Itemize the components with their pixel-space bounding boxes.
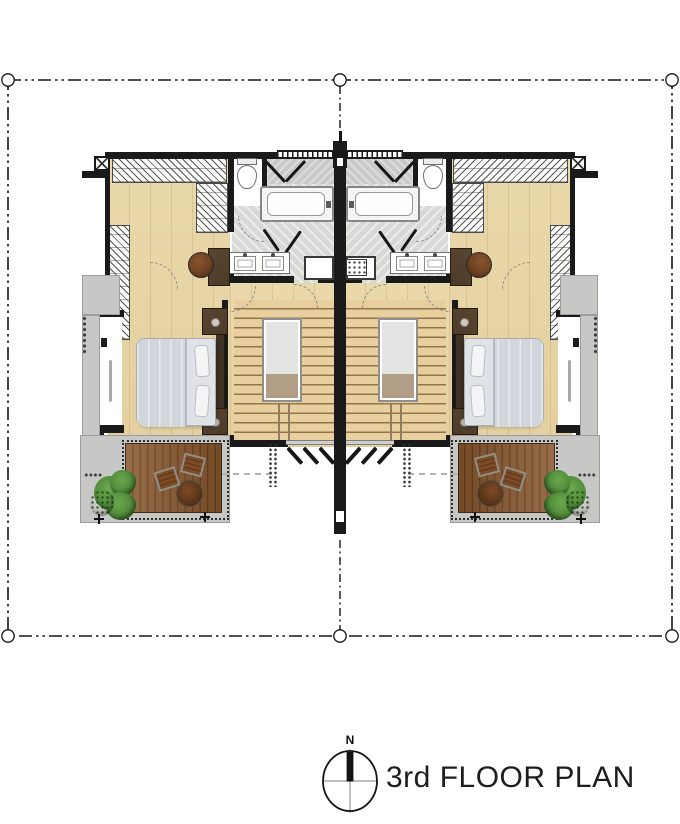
sink-icon: [262, 256, 284, 271]
wardrobe-cabinet: [452, 183, 484, 233]
side-ledge: [560, 275, 598, 315]
page-title: 3rd FLOOR PLAN: [386, 761, 656, 795]
survey-cross: [470, 512, 480, 522]
dotted-strip: [578, 472, 596, 479]
window-glazing: [109, 360, 112, 402]
bathtub-basin: [355, 192, 413, 216]
window-mark: [101, 338, 107, 347]
floor-plan-canvas: N 3rd FLOOR PLAN: [0, 0, 680, 824]
folding-door-leaf: [303, 447, 320, 465]
shaft-box: [570, 156, 586, 171]
stair-landing: [382, 374, 414, 398]
folding-door-leaf: [377, 447, 394, 465]
dressing-stool: [466, 252, 492, 278]
pillow: [470, 385, 486, 418]
side-ledge: [82, 275, 120, 315]
faucet-dot: [271, 253, 275, 257]
folding-door-track: [286, 440, 334, 445]
wall-stub: [570, 171, 598, 178]
bathtub-faucet: [326, 201, 331, 208]
headboard: [216, 335, 224, 408]
bathtub-faucet: [349, 201, 354, 208]
utility-shaft-box: [346, 259, 367, 276]
faucet-dot: [433, 253, 437, 257]
shaft-box: [94, 156, 110, 171]
louver-band: [347, 150, 403, 159]
faucet-dot: [405, 253, 409, 257]
wardrobe-cabinet: [196, 183, 228, 233]
wall-segment: [228, 440, 288, 447]
blanket: [493, 339, 543, 427]
louver-dots: [268, 443, 278, 487]
stair-landing: [266, 374, 298, 398]
bathroom-wall: [228, 276, 294, 283]
setback-dash: [408, 473, 458, 475]
utility-box: [304, 256, 334, 280]
setback-dash: [222, 473, 272, 475]
stair-string: [288, 404, 290, 444]
bathroom-wall: [228, 152, 234, 232]
north-compass-icon: [319, 744, 381, 818]
wall-slot: [337, 158, 343, 166]
louver-band: [277, 150, 333, 159]
stair-string: [390, 404, 392, 444]
center-stem: [339, 131, 342, 143]
bathtub-icon: [346, 186, 420, 222]
lamp-icon: [211, 318, 220, 327]
folding-door-leaf: [361, 447, 378, 465]
nightstand: [452, 308, 478, 335]
unit-right: [340, 138, 600, 535]
pillow: [194, 385, 210, 418]
wall-slot: [336, 511, 344, 522]
survey-cross: [200, 512, 210, 522]
wardrobe-cabinet: [112, 157, 227, 183]
toilet-tank: [423, 158, 443, 165]
wall-segment: [392, 440, 452, 447]
bathtub-basin: [267, 192, 325, 216]
stair-void: [262, 318, 302, 402]
bed-icon: [464, 338, 544, 426]
shower-floor: [344, 156, 412, 184]
vanity-counter: [390, 252, 452, 274]
bed-icon: [136, 338, 216, 426]
party-wall: [334, 150, 346, 534]
drain-chain: [80, 315, 89, 355]
window-mark: [573, 338, 579, 347]
bathroom-wall: [446, 152, 452, 232]
bathtub-icon: [260, 186, 334, 222]
pillow: [194, 345, 210, 378]
folding-door-leaf: [345, 447, 362, 465]
folding-door-leaf: [287, 447, 304, 465]
blanket: [137, 339, 187, 427]
survey-cross: [576, 514, 586, 524]
toilet-tank: [237, 158, 257, 165]
wardrobe-cabinet: [453, 157, 568, 183]
headboard: [456, 335, 464, 408]
stair-void: [378, 318, 418, 402]
folding-door-leaf: [319, 447, 336, 465]
faucet-dot: [243, 253, 247, 257]
lamp-icon: [460, 318, 469, 327]
stair-string: [278, 404, 280, 444]
survey-cross: [94, 514, 104, 524]
vanity-counter: [228, 252, 290, 274]
stair-string: [400, 404, 402, 444]
louver-dots: [402, 443, 412, 487]
drain-chain: [591, 315, 600, 355]
sink-icon: [424, 256, 446, 271]
pillow: [470, 345, 486, 378]
nightstand: [202, 308, 228, 335]
wall-stub: [82, 171, 110, 178]
unit-left: [80, 138, 340, 535]
sink-icon: [396, 256, 418, 271]
dressing-stool: [188, 252, 214, 278]
sink-icon: [234, 256, 256, 271]
bathroom-wall: [386, 276, 452, 283]
dotted-strip: [84, 472, 102, 479]
folding-door-track: [346, 440, 394, 445]
window-glazing: [568, 360, 571, 402]
